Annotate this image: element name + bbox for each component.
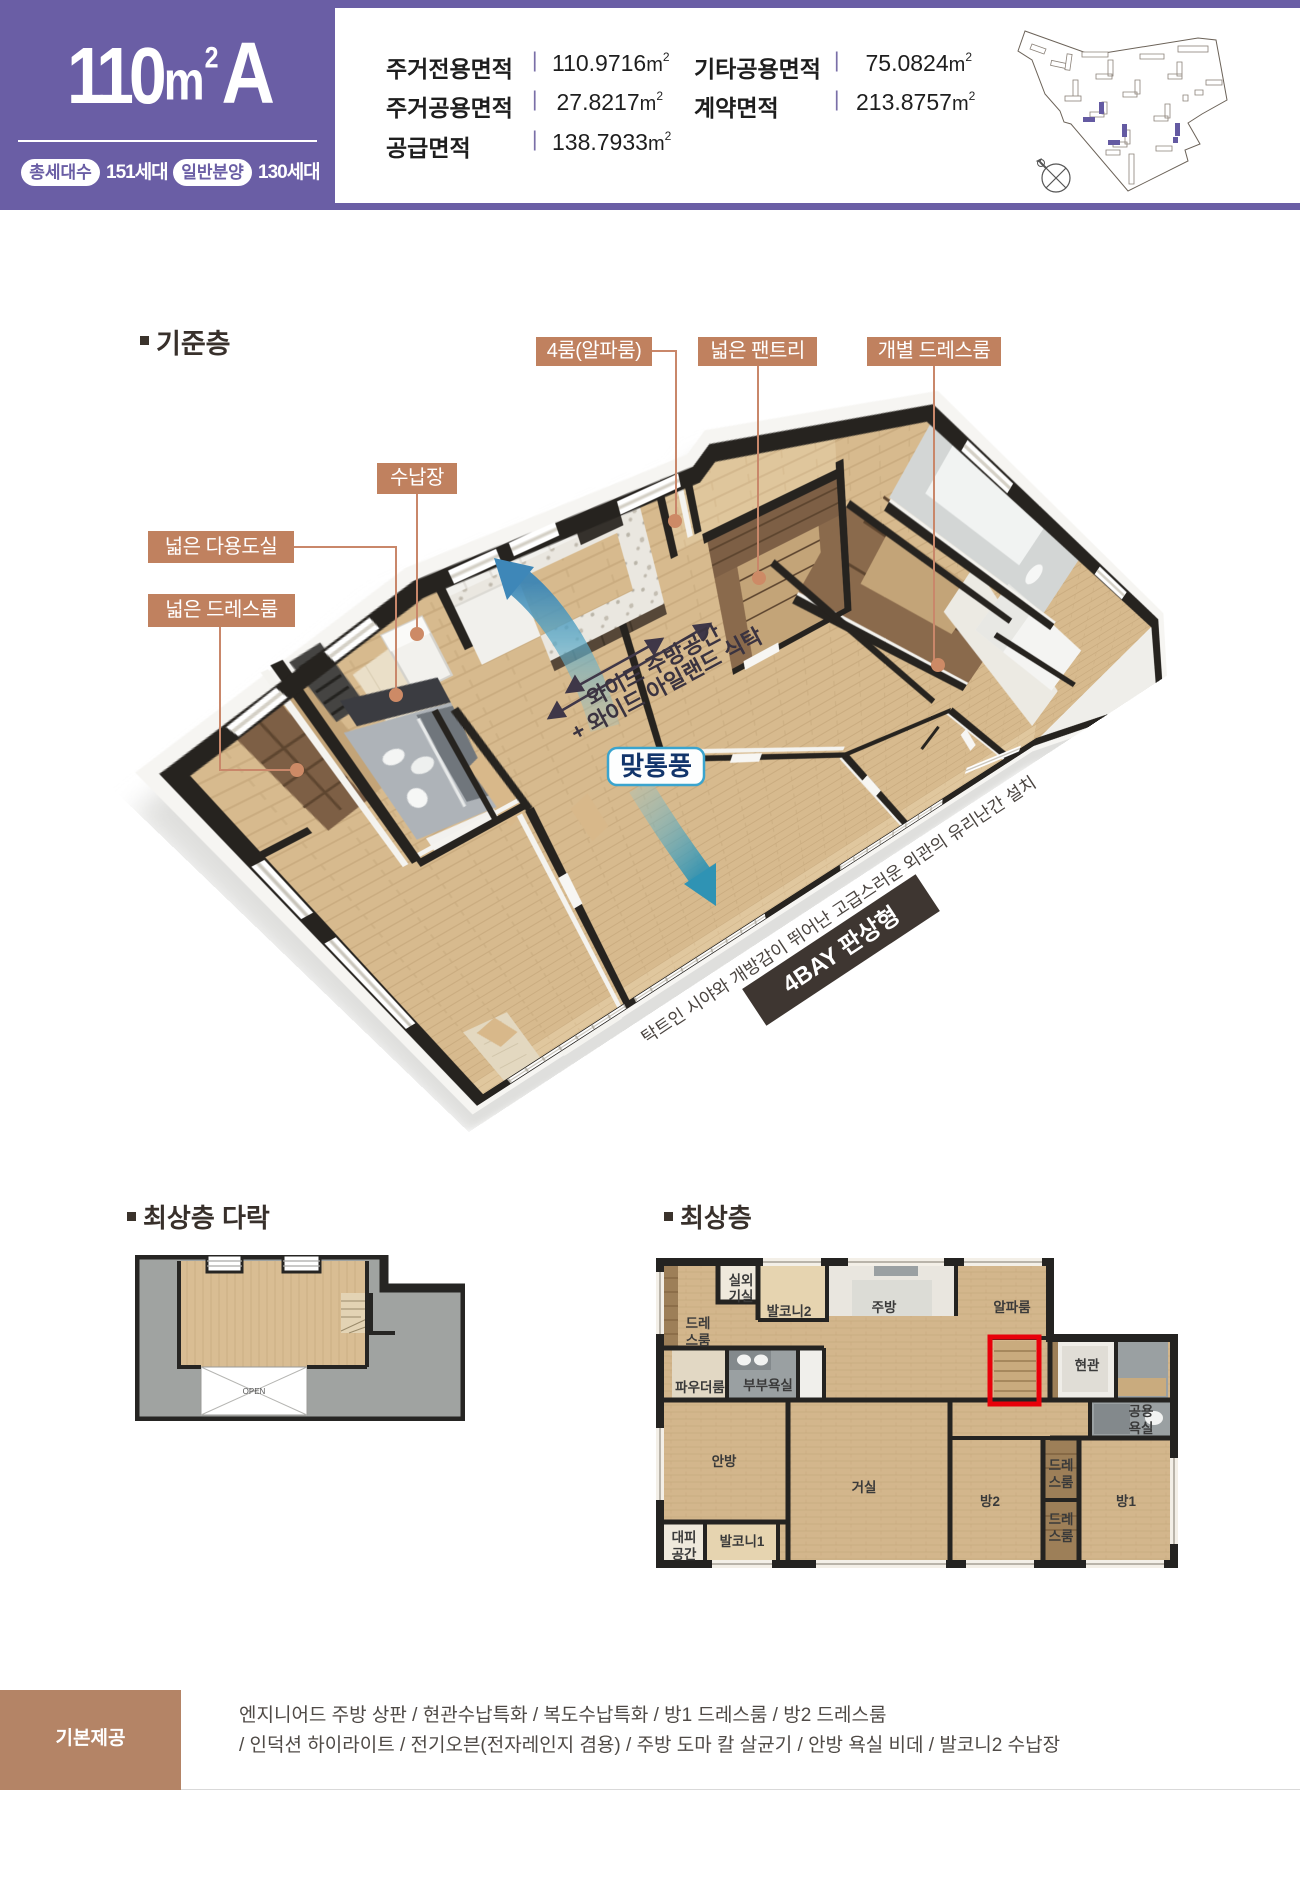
svg-text:방2: 방2 xyxy=(980,1493,1000,1509)
svg-text:드레: 드레 xyxy=(1049,1458,1074,1473)
svg-text:스룸: 스룸 xyxy=(1049,1475,1074,1490)
svg-text:스룸: 스룸 xyxy=(1049,1529,1074,1544)
svg-text:발코니2: 발코니2 xyxy=(767,1303,812,1319)
svg-text:스룸: 스룸 xyxy=(686,1333,711,1348)
svg-text:공용: 공용 xyxy=(1129,1404,1154,1419)
svg-text:드레: 드레 xyxy=(686,1316,711,1331)
svg-text:발코니1: 발코니1 xyxy=(720,1533,765,1549)
svg-text:OPEN: OPEN xyxy=(243,1387,266,1396)
svg-text:공간: 공간 xyxy=(672,1546,697,1562)
svg-text:주방: 주방 xyxy=(872,1299,897,1315)
svg-text:맞통풍: 맞통풍 xyxy=(620,751,692,781)
svg-text:기실: 기실 xyxy=(729,1289,754,1304)
svg-text:알파룸: 알파룸 xyxy=(993,1300,1031,1315)
svg-text:방1: 방1 xyxy=(1116,1493,1136,1509)
svg-text:탁트인 시야와 개방감이 뛰어난 고급스러운 외관의 유리: 탁트인 시야와 개방감이 뛰어난 고급스러운 외관의 유리난간 설치 xyxy=(638,772,1040,1047)
svg-text:실외: 실외 xyxy=(729,1272,754,1288)
svg-text:안방: 안방 xyxy=(712,1453,737,1469)
svg-text:대피: 대피 xyxy=(672,1530,697,1545)
svg-text:드레: 드레 xyxy=(1049,1512,1074,1527)
svg-text:욕실: 욕실 xyxy=(1129,1421,1154,1436)
svg-text:현관: 현관 xyxy=(1075,1357,1100,1373)
svg-text:파우더룸: 파우더룸 xyxy=(675,1380,725,1395)
svg-text:부부욕실: 부부욕실 xyxy=(743,1378,793,1393)
svg-text:거실: 거실 xyxy=(852,1480,877,1495)
